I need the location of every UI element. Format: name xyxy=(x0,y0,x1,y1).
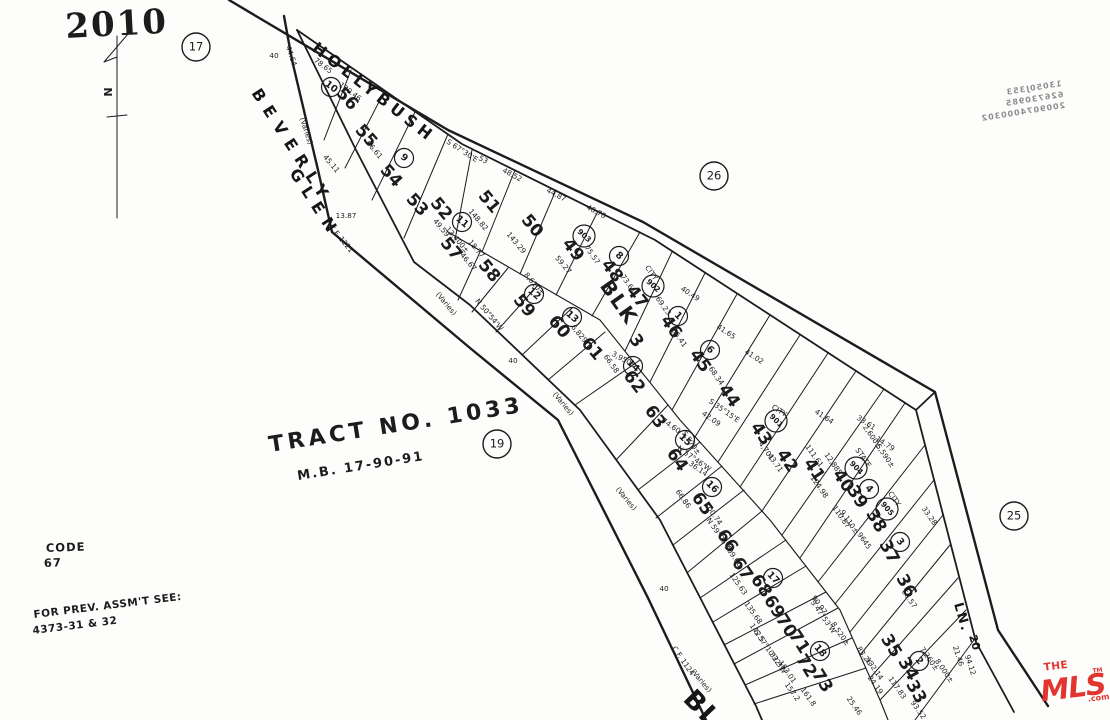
block-number: 3 xyxy=(624,330,647,351)
street-name-label: BEVERLY xyxy=(248,85,337,208)
bleed-through-group: 13050J3536267309852009074000302 xyxy=(977,79,1066,123)
map-annotation: 157.2 xyxy=(783,681,802,703)
map-annotation: 68.34 xyxy=(707,365,727,388)
page-ref-number: 25 xyxy=(1007,509,1022,523)
lot-number: 35 xyxy=(876,631,906,662)
map-annotation: 44.87 xyxy=(545,186,568,204)
map-annotation: 124.98 xyxy=(808,474,830,500)
map-annotation: N 50°54'W xyxy=(473,297,505,333)
map-annotation: 41.65 xyxy=(715,322,737,341)
street-name-label: LN. xyxy=(950,601,973,634)
page-ref-number: 19 xyxy=(490,437,505,451)
parcel-id-number: 11 xyxy=(453,214,470,231)
lot-number: 54 xyxy=(376,161,407,192)
map-annotation: 45.11 xyxy=(321,153,341,175)
page-ref-number: 17 xyxy=(189,40,204,54)
bleed-through-text: 13050J3536267309852009074000302 xyxy=(977,79,1066,123)
north-arrow: N xyxy=(102,34,128,218)
tract-map-book: M.B. 17-90-91 xyxy=(296,449,425,484)
map-annotation: 9645 xyxy=(855,531,873,551)
map-annotation: 143.29 xyxy=(505,230,529,256)
map-annotation: 40 xyxy=(659,584,669,593)
north-label: N xyxy=(102,87,115,96)
lot-numbers: 5610555495352515049903488479024614564443… xyxy=(322,78,931,708)
code-label: CODE xyxy=(46,540,86,555)
plat-map-canvas: N 2010 TRACT NO. 1033 M.B. 17-90-91 CODE… xyxy=(0,0,1110,720)
plat-map-page: N 2010 TRACT NO. 1033 M.B. 17-90-91 CODE… xyxy=(0,0,1110,720)
map-annotation: 13.87 xyxy=(336,211,357,220)
lot-number: 50 xyxy=(517,211,548,242)
parcel-id-number: 18 xyxy=(811,642,828,659)
map-annotation: 40 xyxy=(269,51,279,60)
page-ref-number: 26 xyxy=(707,169,722,183)
map-annotation: CITY xyxy=(643,264,660,283)
tract-title: TRACT NO. 1033 xyxy=(267,393,525,458)
map-annotation: 40 xyxy=(508,356,518,365)
map-annotation: 44.64 xyxy=(284,45,299,68)
map-annotation: 41.64 xyxy=(813,407,836,426)
street-edge-line xyxy=(916,392,935,410)
code-value: 67 xyxy=(44,555,62,570)
page-number: 2010 xyxy=(64,2,169,47)
map-annotation: 25.46 xyxy=(845,695,865,718)
mls-logo-com: .com xyxy=(1087,692,1110,704)
parcel-id-number: 9 xyxy=(398,152,410,165)
lot-number: 58 xyxy=(474,256,505,287)
mls-logo-tm: TM xyxy=(1092,667,1103,675)
map-annotation: (Varies) xyxy=(614,485,639,512)
map-annotation: 41.02 xyxy=(743,347,765,366)
mls-logo: THE MLS .com TM xyxy=(1037,654,1110,709)
street-name-label: BL xyxy=(677,684,727,720)
map-annotation: 40.70 xyxy=(585,203,608,221)
map-annotation: 94.12 xyxy=(963,654,978,677)
map-annotation: 93.52 xyxy=(909,699,928,720)
